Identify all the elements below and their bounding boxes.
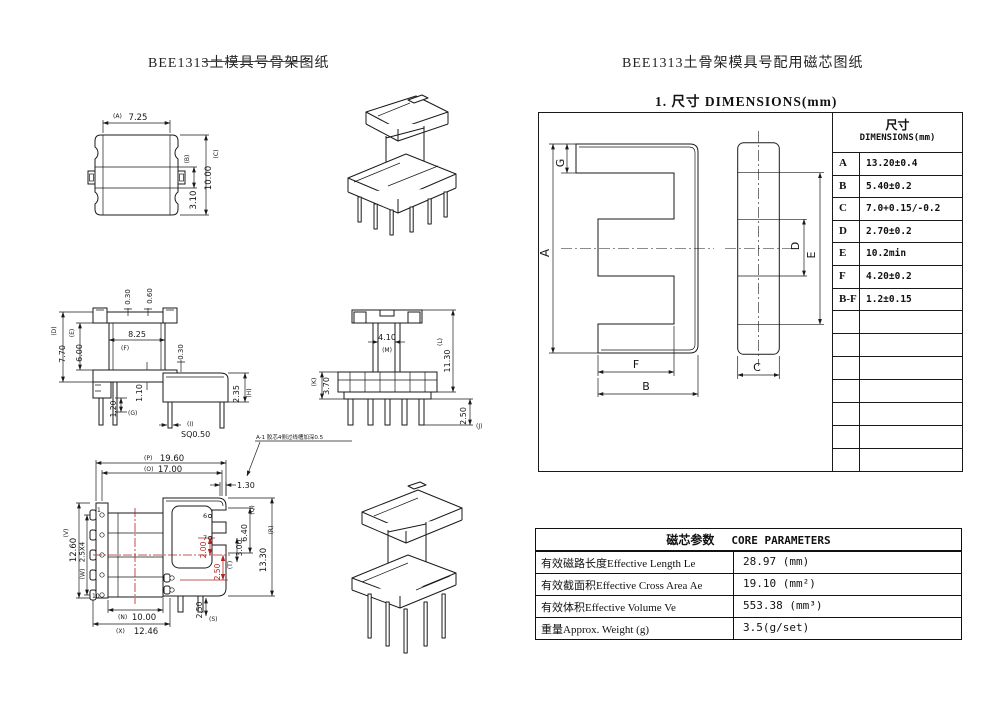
dim-value: 17.00 (158, 465, 182, 475)
dim-value: 4.10 (378, 333, 396, 342)
pin-number: 1 (97, 507, 101, 514)
dim-value: 7.70 (58, 345, 67, 363)
bobbin-bottom-view-drawing: 2.00 2.50 (P) 19.60 (O) 17.00 1.30 (V) 1… (60, 440, 305, 660)
dim-value: 19.60 (160, 454, 184, 464)
core-param-label: 有效磁路长度Effective Length Le (536, 552, 734, 573)
dim-label: (B) (184, 155, 191, 164)
left-sheet-title: BEE1313土模具号骨架图纸 (148, 52, 329, 72)
table-row-empty (833, 426, 962, 449)
core-parameters-header: 磁芯参数 CORE PARAMETERS (536, 529, 961, 551)
table-row: B5.40±0.2 (833, 176, 962, 199)
core-dim-letter-g: G (554, 159, 567, 168)
dim-row-value: 2.70±0.2 (860, 221, 962, 243)
core-dim-letter-c: C (753, 361, 761, 374)
dim-label: (D) (51, 326, 58, 335)
dim-value: 6.00 (75, 344, 84, 362)
core-dim-letter-a: A (539, 248, 552, 257)
bobbin-isometric-upper-drawing (288, 86, 483, 266)
core-dim-letter-f: F (633, 358, 639, 371)
dim-value: 0.60 (146, 288, 154, 304)
pin-number: 7 (203, 534, 207, 542)
core-drawing-frame: A G F B C D E 尺寸 DIMENSIONS(mm) A13.20±0… (538, 112, 963, 472)
dim-value: 10.00 (204, 166, 214, 190)
table-row-empty (833, 380, 962, 403)
dim-label: (K) (311, 378, 318, 387)
dim-label: (S) (209, 616, 218, 623)
dimensions-table-header-en: DIMENSIONS(mm) (833, 133, 962, 143)
dim-value: 3.00 (235, 539, 244, 556)
dim-row-label: D (833, 221, 860, 243)
right-sheet-title: BEE1313土骨架模具号配用磁芯图纸 (622, 52, 863, 72)
table-row-empty (833, 403, 962, 426)
dim-label: (J) (476, 423, 482, 430)
core-param-label: 重量Approx. Weight (g) (536, 618, 734, 639)
dim-label: (E) (69, 329, 76, 337)
table-row: F4.20±0.2 (833, 266, 962, 289)
core-param-label: 有效体积Effective Volume Ve (536, 596, 734, 617)
dim-label: (P) (144, 455, 152, 462)
table-row: D2.70±0.2 (833, 221, 962, 244)
core-param-label: 有效截面积Effective Cross Area Ae (536, 574, 734, 595)
dim-value: 3.70 (322, 377, 331, 395)
dim-label: (A) (113, 113, 122, 120)
dim-value: 12.46 (134, 627, 158, 637)
dim-value: 2.50 (459, 407, 468, 425)
dim-label: (N) (118, 614, 127, 621)
dim-label: (T) (227, 561, 234, 569)
dim-label: (F) (121, 345, 129, 352)
dim-row-value: 7.0+0.15/-0.2 (860, 198, 962, 220)
dim-value: 2.50 (195, 601, 204, 618)
dim-row-label: B-F (833, 289, 860, 311)
table-row-empty (833, 311, 962, 334)
dim-value: 0.30 (177, 344, 185, 360)
dim-row-label: F (833, 266, 860, 288)
dim-value: 8.25 (128, 330, 146, 339)
core-param-value: 28.97 (mm) (734, 552, 961, 573)
table-row-empty (833, 357, 962, 380)
table-row: C7.0+0.15/-0.2 (833, 198, 962, 221)
bobbin-side-view-drawing: 0.30 0.60 (D) 7.70 (E) 6.00 8.25 (F) 0.3… (35, 282, 270, 450)
dim-value: 1.10 (135, 384, 144, 402)
dim-value: 10.00 (132, 613, 156, 623)
red-dim-value: 2.50 (213, 563, 222, 580)
bobbin-isometric-lower-drawing (322, 470, 482, 670)
table-row-empty (833, 334, 962, 357)
dim-row-label: C (833, 198, 860, 220)
dim-label: (O) (144, 466, 153, 473)
engineering-drawing-page: { "titles": { "left": "BEE1313土模具号骨架图纸",… (0, 0, 1000, 706)
dim-value: 7.25 (129, 113, 148, 123)
bobbin-top-view-drawing: (A) 7.25 (C) 10.00 (B) 3.10 (85, 108, 225, 228)
table-row: 有效体积Effective Volume Ve553.38 (mm³) (536, 595, 961, 617)
core-parameters-title-cn: 磁芯参数 (666, 533, 714, 547)
pin-number: 10 (92, 593, 100, 600)
dim-label: (L) (437, 338, 444, 346)
pin-number: 6 (203, 512, 207, 520)
table-row: 有效磁路长度Effective Length Le28.97 (mm) (536, 551, 961, 573)
dim-row-value: 5.40±0.2 (860, 176, 962, 198)
core-dim-letter-e: E (805, 251, 818, 258)
dim-label: (W) (80, 569, 87, 580)
dim-label: (I) (187, 421, 193, 428)
core-param-value: 553.38 (mm³) (734, 596, 961, 617)
dim-label: (M) (382, 347, 392, 354)
dim-label: (C) (213, 150, 220, 159)
dim-value: 13.30 (259, 548, 269, 572)
dim-row-value: 10.2min (860, 243, 962, 265)
dim-label: (V) (63, 529, 70, 538)
dim-value: SQ0.50 (181, 430, 210, 439)
core-views-drawing: A G F B C D E (539, 113, 832, 470)
dim-row-label: B (833, 176, 860, 198)
dim-value: 2.5X4 (79, 541, 87, 562)
core-param-value: 19.10 (mm²) (734, 574, 961, 595)
dim-value: 1.30 (237, 481, 255, 490)
dim-row-value: 13.20±0.4 (860, 153, 962, 175)
dim-label: (R) (268, 526, 275, 535)
core-parameters-title-en: CORE PARAMETERS (731, 534, 830, 547)
dimensions-table-header: 尺寸 DIMENSIONS(mm) (833, 113, 962, 153)
table-row: B-F1.2±0.15 (833, 289, 962, 312)
dim-label: (G) (128, 410, 137, 417)
core-dim-letter-b: B (642, 380, 650, 393)
dim-row-label: A (833, 153, 860, 175)
dim-value: 0.30 (124, 289, 132, 305)
dim-label: (H) (246, 388, 253, 397)
dim-value: 3.10 (189, 191, 199, 210)
dim-value: 12.60 (69, 538, 79, 562)
dim-label: (Q) (249, 505, 256, 514)
dim-row-value: 1.2±0.15 (860, 289, 962, 311)
core-dim-letter-d: D (789, 242, 802, 250)
table-row: E10.2min (833, 243, 962, 266)
title-strike-line (202, 61, 312, 62)
table-row: 重量Approx. Weight (g)3.5(g/set) (536, 617, 961, 639)
table-row: 有效截面积Effective Cross Area Ae19.10 (mm²) (536, 573, 961, 595)
dim-row-value: 4.20±0.2 (860, 266, 962, 288)
core-param-value: 3.5(g/set) (734, 618, 961, 639)
dimensions-section-title: 1. 尺寸 DIMENSIONS(mm) (655, 90, 837, 110)
dimensions-table: 尺寸 DIMENSIONS(mm) A13.20±0.4 B5.40±0.2 C… (832, 113, 962, 471)
dim-value: 1.20 (109, 400, 118, 417)
dim-row-label: E (833, 243, 860, 265)
table-row: A13.20±0.4 (833, 153, 962, 176)
dimensions-table-header-cn: 尺寸 (833, 116, 962, 133)
dim-label: (X) (116, 628, 125, 635)
table-row-empty (833, 449, 962, 471)
dim-value: 2.35 (232, 385, 241, 403)
bobbin-front-view-drawing: 4.10 (M) (L) 11.30 3.70 (K) 2.50 (J) (310, 295, 488, 435)
red-dim-value: 2.00 (199, 541, 208, 558)
dim-value: 6.40 (240, 524, 249, 542)
dim-value: 11.30 (443, 350, 452, 373)
core-parameters-table: 磁芯参数 CORE PARAMETERS 有效磁路长度Effective Len… (535, 528, 962, 640)
